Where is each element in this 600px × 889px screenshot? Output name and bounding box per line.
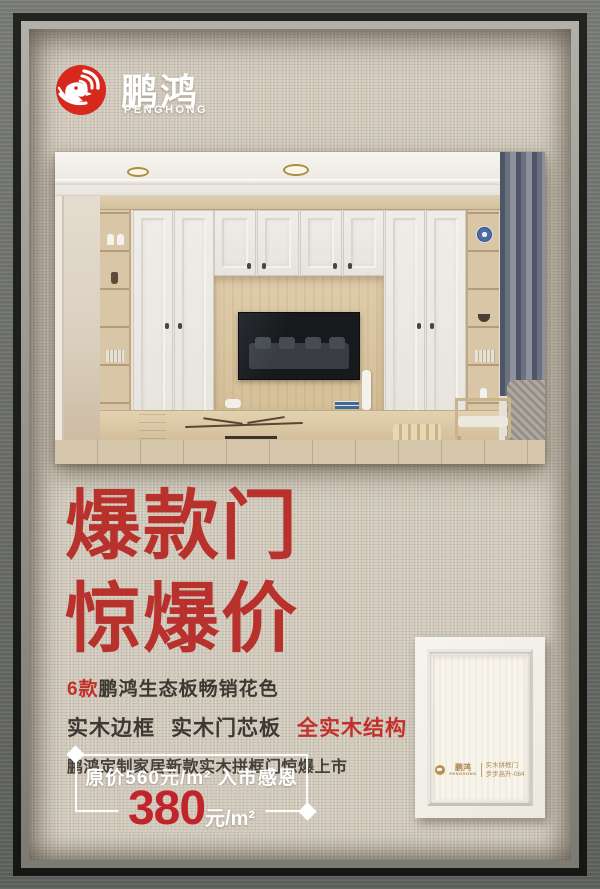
penghong-eagle-icon	[55, 64, 107, 116]
promo-price-value: 380	[128, 782, 205, 835]
promo-price-unit: 元/m²	[205, 808, 255, 830]
small-vase	[111, 272, 118, 284]
figurine-decor	[117, 234, 124, 245]
upper-cabinet-door	[300, 210, 342, 276]
door-recess-panel	[222, 218, 248, 268]
door-recess-panel	[141, 218, 165, 432]
feature-line2-part1: 实木边框	[67, 717, 155, 740]
door-knob	[165, 323, 169, 329]
door-label-brand-cn: 鹏鸿	[455, 763, 471, 772]
books	[475, 350, 495, 362]
promo-price: 380元/m²	[118, 785, 265, 833]
door-knob	[178, 323, 182, 329]
vent-slot	[225, 436, 277, 439]
door-knob	[348, 263, 352, 269]
ceiling-light	[127, 167, 149, 177]
blue-white-plate	[476, 226, 493, 243]
door-sample-label: 鹏鸿 PENGHONG 实木拼框门 步步高升-084	[433, 761, 527, 781]
headline-line1: 爆款门	[65, 481, 299, 574]
door-label-brand: 鹏鸿 PENGHONG	[449, 764, 476, 777]
upper-cabinet-door	[343, 210, 384, 276]
headline-line2: 惊爆价	[65, 574, 299, 667]
dark-bowl	[478, 314, 490, 322]
price-box: 原价560元/m² 入市感恩价 380元/m²	[75, 754, 308, 812]
open-shelf-left	[100, 210, 131, 440]
door-label-model: 步步高升-084	[486, 770, 525, 780]
wardrobe-door	[133, 210, 173, 440]
feature-line1-rest: 鹏鸿生态板畅销花色	[99, 679, 279, 700]
penghong-gold-icon	[435, 765, 445, 775]
books	[106, 350, 124, 362]
white-book-stack	[139, 414, 166, 439]
door-recess-panel	[308, 218, 334, 268]
poster-background: 鹏鸿 PENGHONG	[29, 29, 571, 860]
brand-logo: 鹏鸿 PENGHONG	[55, 64, 235, 126]
door-knob	[262, 263, 266, 269]
door-recess-panel	[265, 218, 291, 268]
door-knob	[247, 263, 251, 269]
door-knob	[417, 323, 421, 329]
feature-line2: 实木边框实木门芯板全实木结构	[67, 712, 407, 742]
door-label-text: 实木拼框门 步步高升-084	[486, 761, 525, 781]
tv-reflection-pillow	[329, 337, 345, 349]
blue-books	[335, 401, 359, 409]
door-sample: 鹏鸿 PENGHONG 实木拼框门 步步高升-084	[415, 637, 545, 818]
curtain	[500, 152, 545, 396]
living-room-photo	[55, 152, 545, 464]
door-sample-panel: 鹏鸿 PENGHONG 实木拼框门 步步高升-084	[433, 655, 527, 800]
tv-glare	[238, 312, 309, 380]
door-recess-panel	[393, 218, 417, 432]
wood-floor	[55, 440, 545, 464]
ceiling-light	[283, 164, 309, 176]
upper-cabinet-door	[257, 210, 299, 276]
photo-ceiling	[55, 152, 545, 196]
feature-line2-part2: 实木门芯板	[171, 717, 281, 740]
upper-cabinet-door	[214, 210, 256, 276]
figurine-decor	[107, 234, 114, 245]
wardrobe-door	[174, 210, 214, 440]
crown-molding	[55, 179, 545, 185]
wardrobe-door	[385, 210, 425, 440]
door-knob	[430, 323, 434, 329]
door-label-product: 实木拼框门	[486, 761, 525, 771]
door-recess-panel	[351, 218, 376, 268]
feature-line1-highlight: 6款	[67, 679, 99, 700]
headline: 爆款门 惊爆价	[65, 481, 299, 667]
white-vase	[362, 370, 371, 410]
door-recess-panel	[182, 218, 206, 432]
door-label-brand-en: PENGHONG	[449, 772, 476, 776]
label-divider	[481, 763, 482, 777]
hallway-door-frame	[55, 196, 64, 440]
door-knob	[333, 263, 337, 269]
decorative-branch	[185, 418, 303, 430]
cabinet-top-rail	[100, 196, 500, 210]
feature-line1: 6款鹏鸿生态板畅销花色	[67, 674, 407, 701]
brand-name-en: PENGHONG	[123, 104, 209, 116]
tv-screen	[238, 312, 360, 380]
chair-cushion	[458, 416, 508, 427]
feature-line2-highlight: 全实木结构	[297, 717, 407, 740]
game-controller	[225, 399, 241, 408]
photo-hallway	[55, 196, 100, 440]
